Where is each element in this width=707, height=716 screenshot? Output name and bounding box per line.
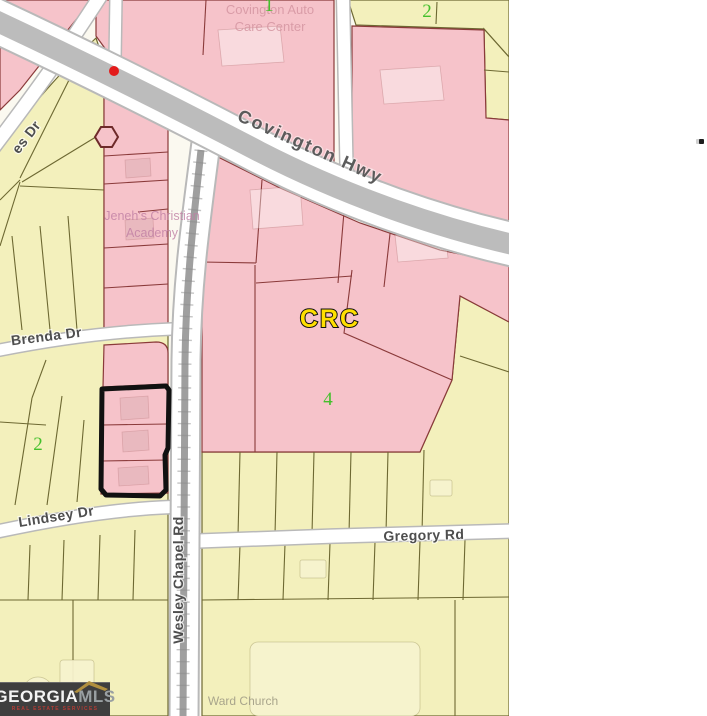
covington-auto-label-line2: Care Center: [235, 19, 306, 34]
zone-number-2-top: 2: [422, 1, 432, 22]
side-street-north: [115, 0, 116, 60]
wesley-chapel-rd-label: Wesley Chapel Rd: [170, 516, 186, 644]
mls-map-screenshot: Covington Hwy Wesley Chapel Rd Gregory R…: [0, 0, 707, 716]
parcel-map-canvas[interactable]: Covington Hwy Wesley Chapel Rd Gregory R…: [0, 0, 509, 716]
ward-church-label: Ward Church: [208, 694, 278, 708]
jenehs-academy-label-line1: Jeneh's Christian: [104, 209, 200, 223]
zone-number-2-left: 2: [33, 434, 43, 455]
stray-dot-artifact: [699, 139, 704, 144]
georgia-mls-logo: GEORGIA MLS REAL ESTATE SERVICES: [0, 682, 110, 716]
jenehs-academy-label-line2: Academy: [126, 226, 179, 240]
zone-number-1: 1: [264, 0, 274, 16]
gregory-rd-label: Gregory Rd: [383, 526, 464, 544]
logo-suffix-text: MLS: [78, 688, 115, 705]
logo-tagline: REAL ESTATE SERVICES: [12, 706, 98, 712]
crc-zoning-label: CRC: [300, 305, 360, 333]
zone-number-4: 4: [323, 389, 333, 410]
red-location-dot: [109, 66, 119, 76]
hexagon-parcel-marker: [95, 127, 118, 147]
logo-brand-text: GEORGIA: [0, 688, 78, 705]
logo-roof-icon: [74, 681, 108, 693]
